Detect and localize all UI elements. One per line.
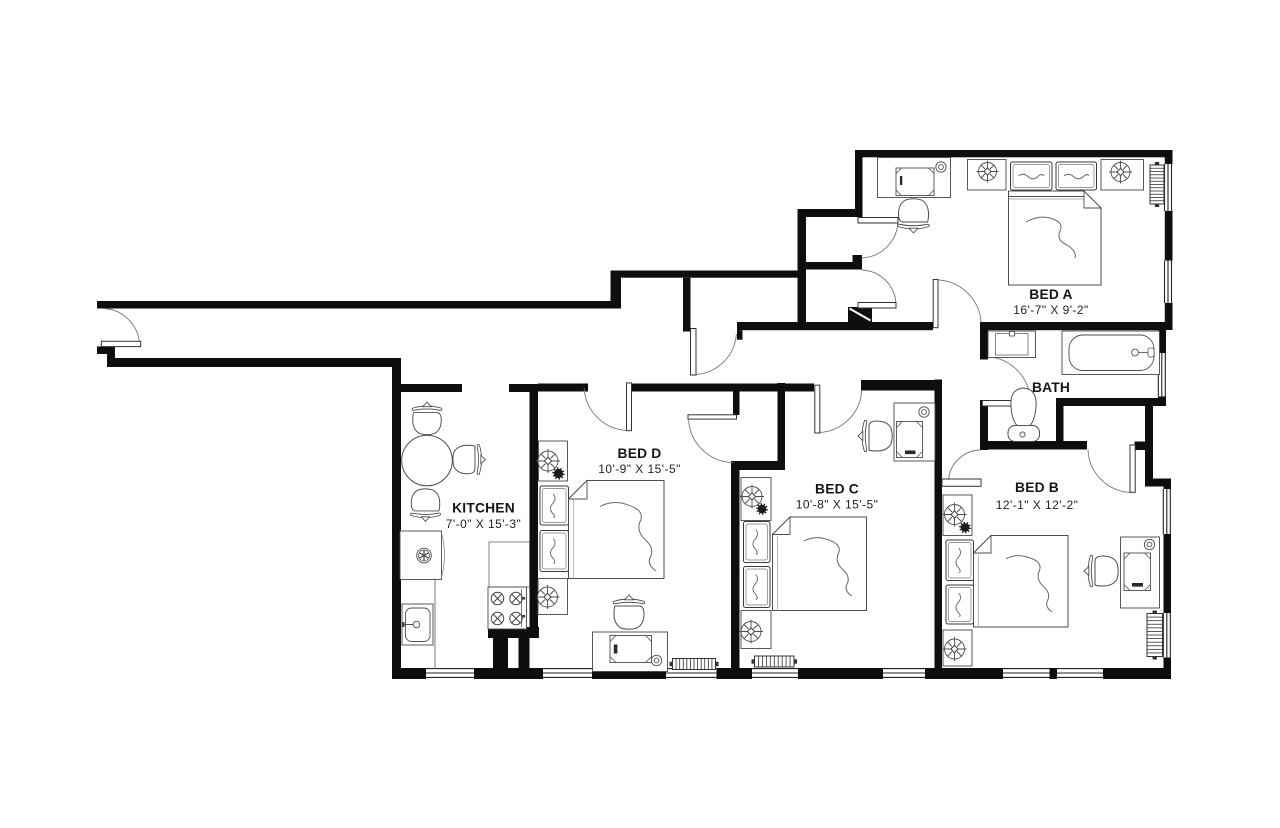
svg-text:BATH: BATH [1032, 380, 1070, 395]
svg-text:BED A: BED A [1029, 287, 1072, 302]
svg-text:7'-0" X 15'-3": 7'-0" X 15'-3" [446, 517, 521, 531]
svg-text:10'-8" X 15'-5": 10'-8" X 15'-5" [796, 498, 879, 512]
svg-text:16'-7" X 9'-2": 16'-7" X 9'-2" [1013, 303, 1088, 317]
svg-text:BED C: BED C [815, 482, 859, 497]
svg-text:BED D: BED D [618, 446, 662, 461]
svg-text:12'-1" X 12'-2": 12'-1" X 12'-2" [996, 498, 1079, 512]
svg-text:10'-9" X 15'-5": 10'-9" X 15'-5" [598, 462, 681, 476]
svg-text:KITCHEN: KITCHEN [452, 501, 515, 516]
svg-text:BED B: BED B [1015, 480, 1059, 495]
